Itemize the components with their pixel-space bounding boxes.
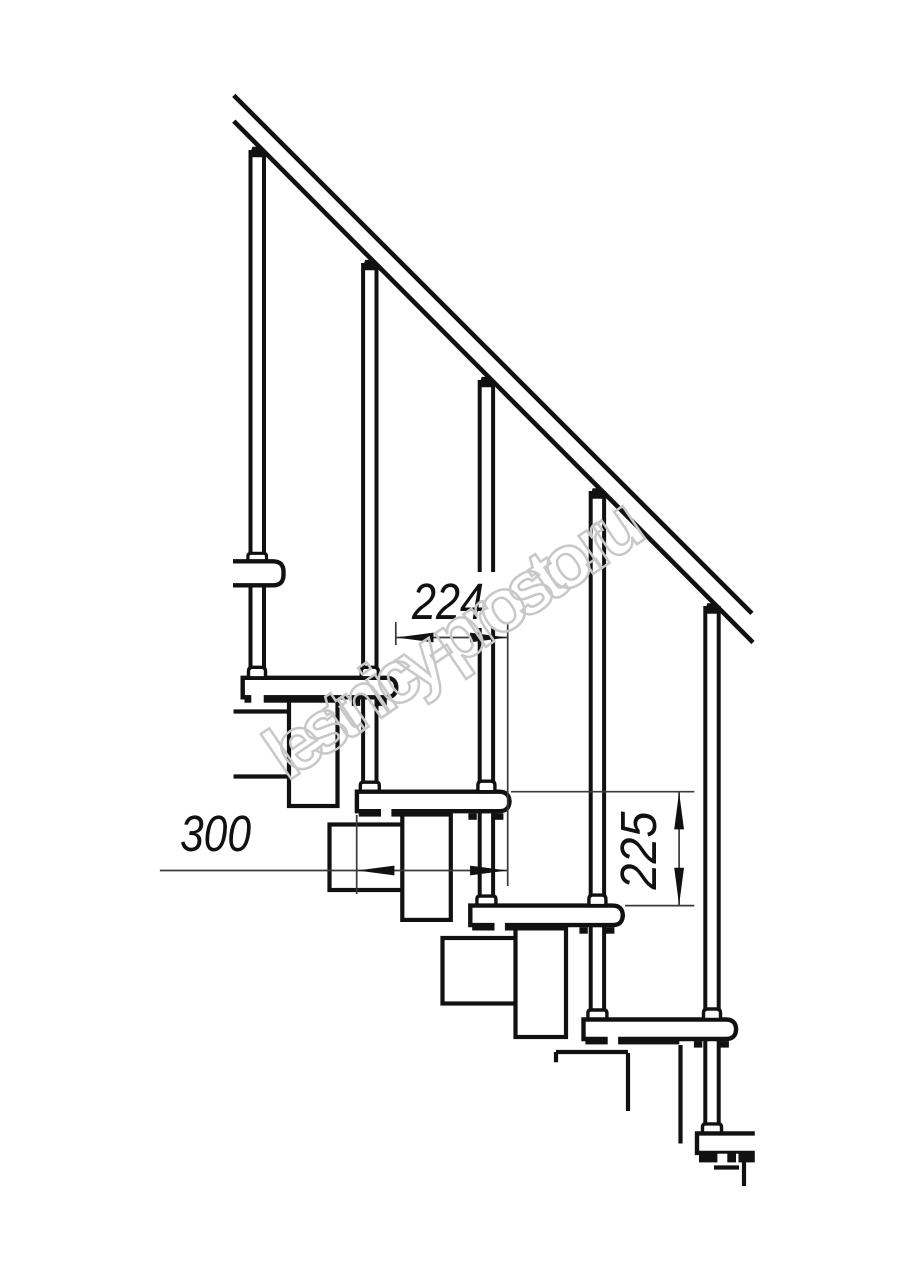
svg-text:300: 300 <box>180 805 251 862</box>
svg-text:225: 225 <box>610 811 667 890</box>
